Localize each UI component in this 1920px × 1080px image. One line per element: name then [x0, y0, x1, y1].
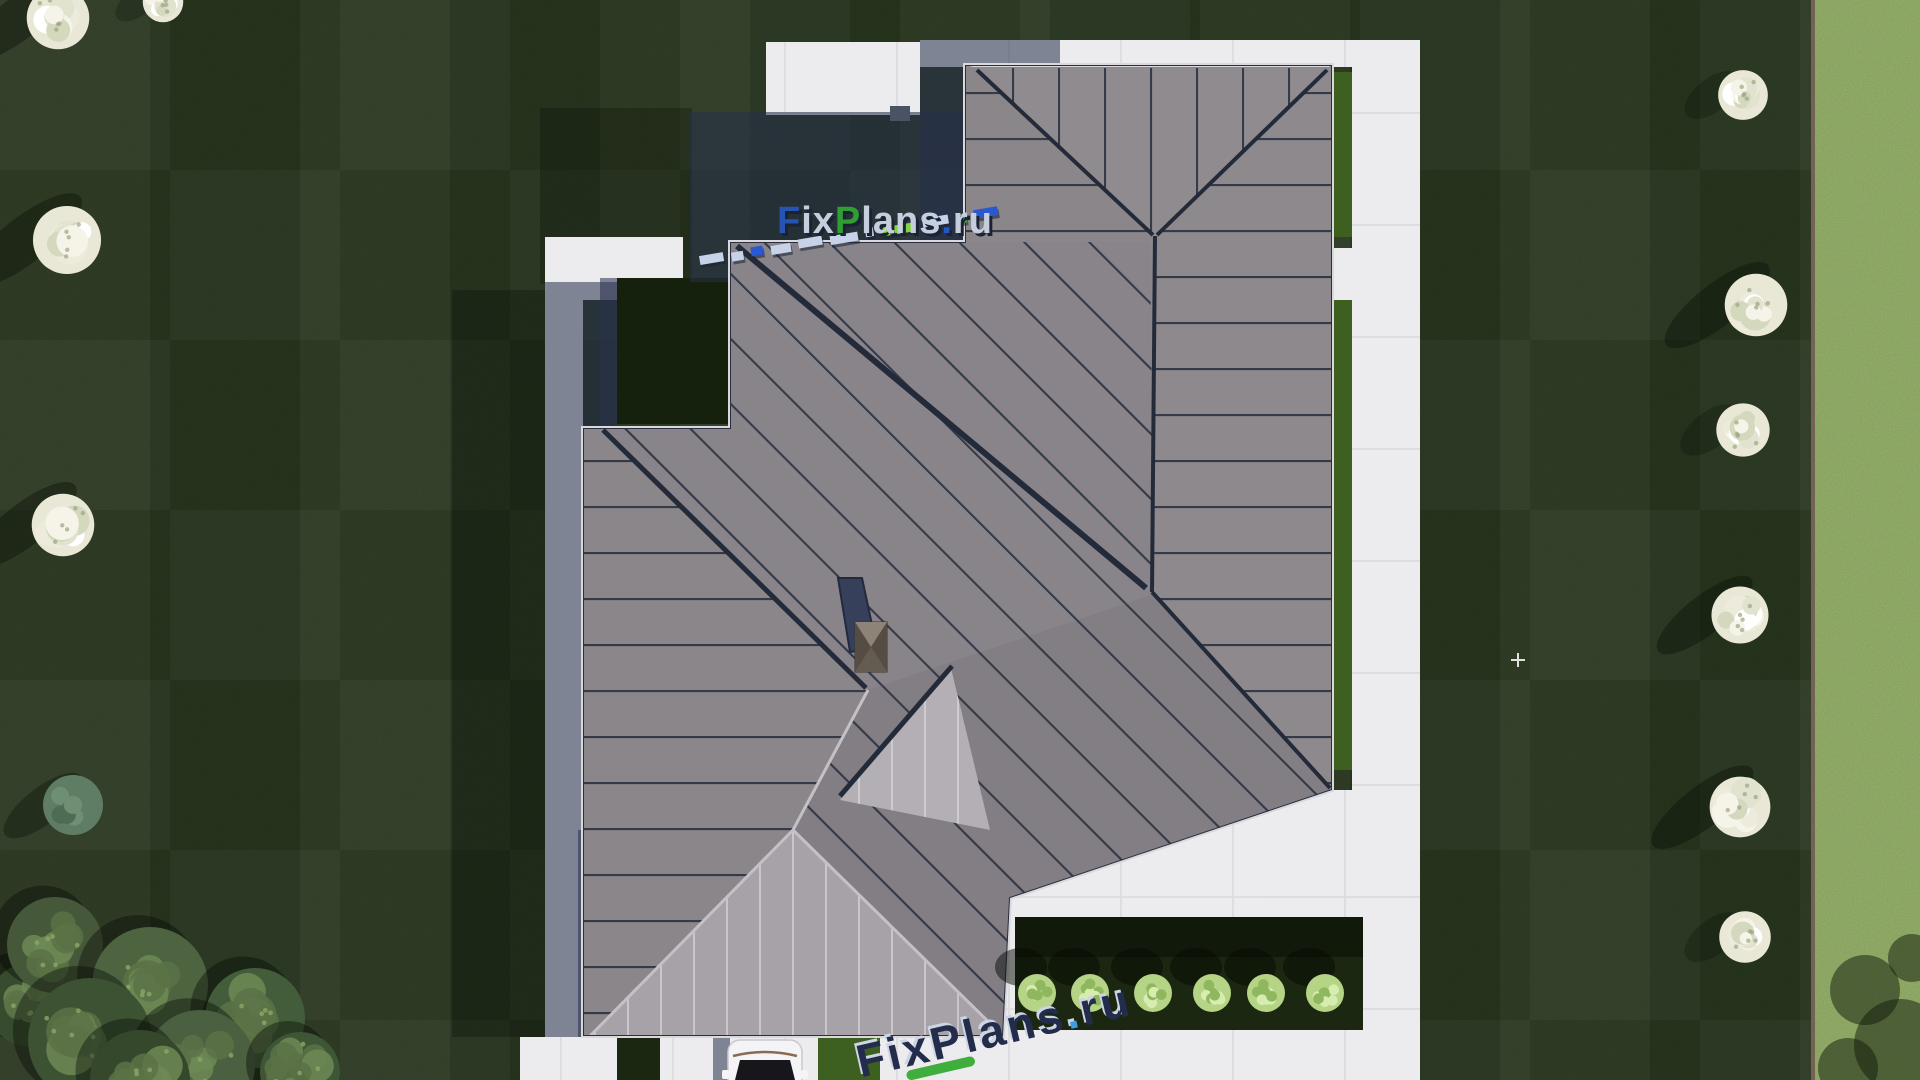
- hedge-driveway-left: [617, 1037, 660, 1080]
- car: [722, 1040, 808, 1080]
- watermark-top-text: FixPlans.ru: [777, 200, 993, 242]
- hedge-strip-upper: [1334, 72, 1352, 237]
- car-mirror-left: [722, 1070, 729, 1079]
- path-right-spur: [1332, 248, 1354, 302]
- roof-vent: [890, 106, 910, 121]
- shadow-top-band: [920, 40, 1060, 67]
- scene-svg: FixPlans.ru FixPlans.ru FixPlans.ru FixP…: [0, 0, 1920, 1080]
- hedge-strip-lower: [1334, 300, 1352, 770]
- aerial-site-render: FixPlans.ru FixPlans.ru FixPlans.ru FixP…: [0, 0, 1920, 1080]
- car-windshield: [735, 1060, 795, 1080]
- lawn-shade-west: [452, 290, 545, 1037]
- chimney: [855, 622, 887, 672]
- car-mirror-right: [801, 1070, 808, 1079]
